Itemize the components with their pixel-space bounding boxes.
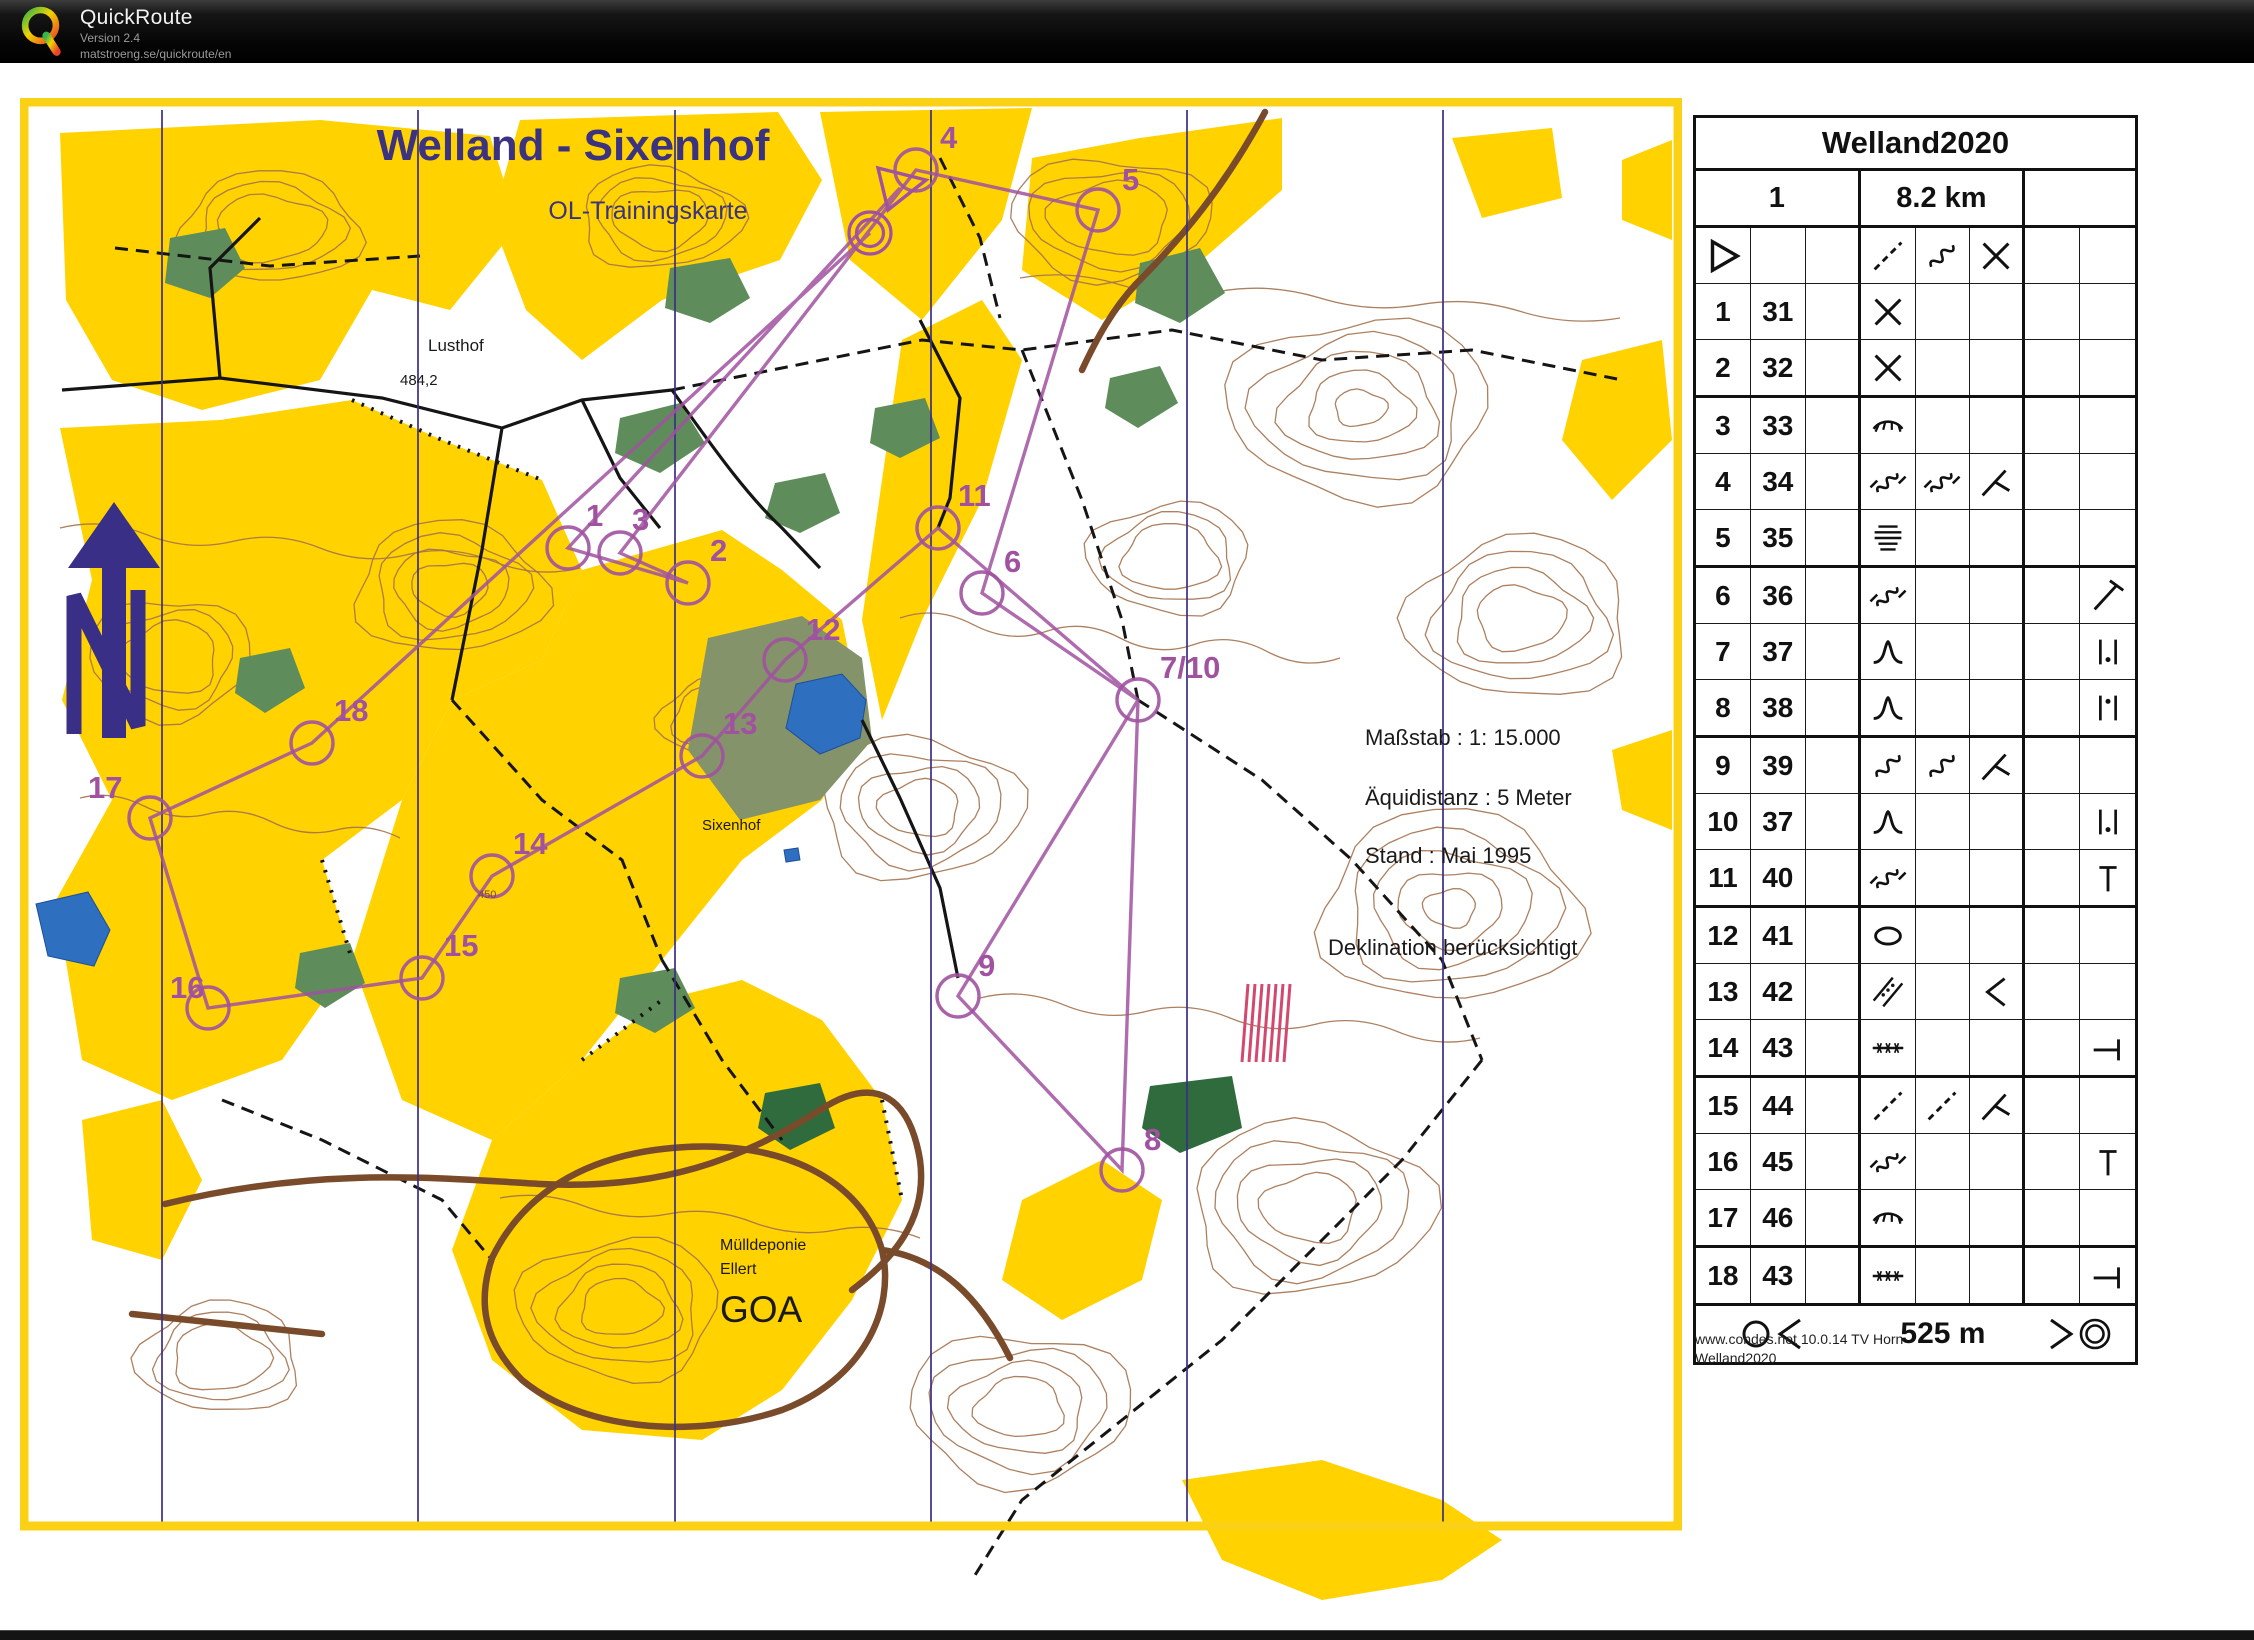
cd-cell-d bbox=[1861, 284, 1916, 339]
cd-cell-b: 36 bbox=[1751, 568, 1806, 623]
cd-cell-g bbox=[2025, 1134, 2080, 1189]
taped-route-finish-symbol bbox=[2025, 1306, 2135, 1362]
control-number-label: 11 bbox=[958, 478, 991, 513]
control-code: 42 bbox=[1762, 976, 1793, 1008]
control-row: 1843 bbox=[1696, 1248, 2135, 1306]
veg-boundary-symbol bbox=[1867, 405, 1909, 447]
cd-cell-c bbox=[1806, 908, 1861, 963]
cd-cell-f bbox=[1970, 680, 2025, 735]
control-code: 39 bbox=[1762, 750, 1793, 782]
cd-cell-d bbox=[1861, 850, 1916, 905]
cd-cell-e bbox=[1916, 1134, 1971, 1189]
cross-symbol bbox=[1975, 235, 2017, 277]
control-code: 37 bbox=[1762, 636, 1793, 668]
cd-cell-f bbox=[1970, 624, 2025, 679]
cd-cell-e bbox=[1916, 908, 1971, 963]
cd-cell-f bbox=[1970, 228, 2025, 283]
cd-cell-b: 44 bbox=[1751, 1078, 1806, 1133]
label-goa: GOA bbox=[720, 1289, 803, 1330]
cd-cell-d bbox=[1861, 1020, 1916, 1075]
cd-cell-a: 11 bbox=[1696, 850, 1751, 905]
control-number: 4 bbox=[1715, 466, 1731, 498]
junction-y-symbol bbox=[1975, 745, 2017, 787]
cd-cell-f bbox=[1970, 454, 2025, 509]
cd-cell-e bbox=[1916, 510, 1971, 565]
app-url: matstroeng.se/quickroute/en bbox=[80, 48, 231, 62]
cd-cell-d bbox=[1861, 228, 1916, 283]
label-lusthof: Lusthof bbox=[428, 336, 484, 355]
cd-cell-e bbox=[1916, 794, 1971, 849]
cd-cell-c bbox=[1806, 1190, 1861, 1245]
control-number: 14 bbox=[1707, 1032, 1738, 1064]
control-number-label: 4 bbox=[940, 120, 958, 155]
control-number: 6 bbox=[1715, 580, 1731, 612]
cd-cell-e bbox=[1916, 228, 1971, 283]
cd-cell-h bbox=[2080, 284, 2135, 339]
cd-cell-b: 42 bbox=[1751, 964, 1806, 1019]
cd-cell-c bbox=[1806, 398, 1861, 453]
junction-y-symbol bbox=[1975, 1085, 2017, 1127]
cd-cell-b: 46 bbox=[1751, 1190, 1806, 1245]
control-number-label: 6 bbox=[1004, 544, 1021, 579]
cross-symbol bbox=[1867, 291, 1909, 333]
cd-cell-c bbox=[1806, 284, 1861, 339]
cd-cell-f bbox=[1970, 340, 2025, 395]
cd-cell-a: 15 bbox=[1696, 1078, 1751, 1133]
cd-cell-d bbox=[1861, 964, 1916, 1019]
cd-cell-f bbox=[1970, 1078, 2025, 1133]
cd-cell-e bbox=[1916, 738, 1971, 793]
control-code: 43 bbox=[1762, 1260, 1793, 1292]
label-contour-value: 450 bbox=[478, 889, 496, 901]
control-code: 46 bbox=[1762, 1202, 1793, 1234]
control-number: 16 bbox=[1707, 1146, 1738, 1178]
cd-cell-g bbox=[2025, 1248, 2080, 1303]
cd-cell-d bbox=[1861, 340, 1916, 395]
cd-cell-a: 7 bbox=[1696, 624, 1751, 679]
course-number: 1 bbox=[1696, 171, 1861, 225]
cd-cell-b: 40 bbox=[1751, 850, 1806, 905]
cd-cell-f bbox=[1970, 284, 2025, 339]
ride-symbol bbox=[1867, 971, 1909, 1013]
cd-cell-f bbox=[1970, 1020, 2025, 1075]
cd-cell-h bbox=[2080, 510, 2135, 565]
cd-cell-e bbox=[1916, 680, 1971, 735]
control-number: 9 bbox=[1715, 750, 1731, 782]
fence-symbol bbox=[1867, 1027, 1909, 1069]
label-sixenhof: Sixenhof bbox=[702, 817, 761, 834]
cd-cell-h bbox=[2080, 1190, 2135, 1245]
cd-cell-g bbox=[2025, 850, 2080, 905]
gully-symbol bbox=[1921, 461, 1963, 503]
credits: www.condes.net 10.0.14 TV Horn Welland20… bbox=[1695, 1330, 1903, 1368]
control-number-label: 13 bbox=[723, 706, 757, 741]
bend-symbol bbox=[1975, 971, 2017, 1013]
cd-cell-a bbox=[1696, 228, 1751, 283]
cd-cell-h bbox=[2080, 454, 2135, 509]
t-top-symbol bbox=[2087, 857, 2129, 899]
info-declination: Deklination berücksichtigt bbox=[1328, 935, 1577, 960]
cd-cell-e bbox=[1916, 568, 1971, 623]
control-number-label: 17 bbox=[88, 770, 122, 805]
cd-cell-a: 1 bbox=[1696, 284, 1751, 339]
app-title: QuickRoute bbox=[80, 6, 231, 30]
info-scale: Maßstab : 1: 15.000 bbox=[1365, 725, 1561, 750]
control-row: 1443 bbox=[1696, 1020, 2135, 1078]
cd-cell-b: 32 bbox=[1751, 340, 1806, 395]
cd-cell-h bbox=[2080, 624, 2135, 679]
cd-cell-c bbox=[1806, 1020, 1861, 1075]
cd-cell-f bbox=[1970, 850, 2025, 905]
cd-cell-c bbox=[1806, 624, 1861, 679]
chevron-double-circle-symbol bbox=[2043, 1312, 2117, 1356]
cd-cell-g bbox=[2025, 284, 2080, 339]
control-row: 333 bbox=[1696, 398, 2135, 454]
cd-cell-g bbox=[2025, 964, 2080, 1019]
cd-cell-c bbox=[1806, 454, 1861, 509]
control-number-label: 8 bbox=[1144, 1122, 1161, 1157]
knoll-symbol bbox=[1867, 801, 1909, 843]
control-row: 737 bbox=[1696, 624, 2135, 680]
cd-cell-d bbox=[1861, 908, 1916, 963]
cd-cell-a: 8 bbox=[1696, 680, 1751, 735]
control-number-label: 5 bbox=[1122, 162, 1139, 197]
cd-cell-d bbox=[1861, 454, 1916, 509]
end-bar-symbol bbox=[2087, 1027, 2129, 1069]
control-number-label: 18 bbox=[334, 693, 368, 728]
cd-cell-a: 4 bbox=[1696, 454, 1751, 509]
control-number: 18 bbox=[1707, 1260, 1738, 1292]
fence-symbol bbox=[1867, 1255, 1909, 1297]
cd-cell-b: 38 bbox=[1751, 680, 1806, 735]
gully-symbol bbox=[1867, 575, 1909, 617]
squiggle-symbol bbox=[1867, 745, 1909, 787]
control-code: 43 bbox=[1762, 1032, 1793, 1064]
cd-cell-h bbox=[2080, 1134, 2135, 1189]
cd-cell-a: 3 bbox=[1696, 398, 1751, 453]
control-row: 535 bbox=[1696, 510, 2135, 568]
cd-cell-b: 37 bbox=[1751, 794, 1806, 849]
control-row: 434 bbox=[1696, 454, 2135, 510]
cd-cell-c bbox=[1806, 1134, 1861, 1189]
cd-cell-a: 5 bbox=[1696, 510, 1751, 565]
control-number-label: 12 bbox=[806, 612, 840, 647]
control-number-label: 7/10 bbox=[1160, 650, 1220, 685]
cd-cell-b: 39 bbox=[1751, 738, 1806, 793]
junction-y-symbol bbox=[1975, 461, 2017, 503]
cd-cell-g bbox=[2025, 454, 2080, 509]
cd-cell-e bbox=[1916, 284, 1971, 339]
cd-cell-f bbox=[1970, 510, 2025, 565]
cd-cell-a: 17 bbox=[1696, 1190, 1751, 1245]
cd-cell-d bbox=[1861, 738, 1916, 793]
label-spot-height: 484,2 bbox=[400, 372, 438, 389]
end-bar-symbol bbox=[2087, 1255, 2129, 1297]
control-rows: 1312323334345356367378389391037114012411… bbox=[1696, 228, 2135, 1306]
cd-cell-e bbox=[1916, 850, 1971, 905]
gully-symbol bbox=[1867, 857, 1909, 899]
cd-cell-e bbox=[1916, 398, 1971, 453]
cd-cell-f bbox=[1970, 908, 2025, 963]
control-number: 8 bbox=[1715, 692, 1731, 724]
cd-cell-b: 34 bbox=[1751, 454, 1806, 509]
hatched-area bbox=[1242, 984, 1290, 1062]
cd-cell-c bbox=[1806, 794, 1861, 849]
cd-cell-d bbox=[1861, 1190, 1916, 1245]
label-muelldeponie: Mülldeponie bbox=[720, 1237, 806, 1254]
cd-cell-g bbox=[2025, 794, 2080, 849]
cd-cell-e bbox=[1916, 1078, 1971, 1133]
cd-cell-f bbox=[1970, 1248, 2025, 1303]
control-code: 36 bbox=[1762, 580, 1793, 612]
control-row: 232 bbox=[1696, 340, 2135, 398]
cd-cell-c bbox=[1806, 568, 1861, 623]
control-number: 12 bbox=[1707, 920, 1738, 952]
gully-symbol bbox=[1867, 461, 1909, 503]
between-dot-low-symbol bbox=[2087, 631, 2129, 673]
cd-cell-e bbox=[1916, 1248, 1971, 1303]
cd-cell-g bbox=[2025, 1078, 2080, 1133]
cd-cell-f bbox=[1970, 794, 2025, 849]
cd-cell-c bbox=[1806, 964, 1861, 1019]
control-description-sheet: Welland2020 1 8.2 km 1312323334345356367… bbox=[1693, 115, 2138, 1365]
dashed-line-symbol bbox=[1921, 1085, 1963, 1127]
cd-cell-g bbox=[2025, 908, 2080, 963]
info-state: Stand : Mai 1995 bbox=[1365, 843, 1531, 868]
control-row: 636 bbox=[1696, 568, 2135, 624]
control-number-label: 16 bbox=[170, 970, 204, 1005]
control-code: 35 bbox=[1762, 522, 1793, 554]
gully-symbol bbox=[1867, 1141, 1909, 1183]
cd-cell-c bbox=[1806, 850, 1861, 905]
cd-cell-b: 33 bbox=[1751, 398, 1806, 453]
control-row: 939 bbox=[1696, 738, 2135, 794]
cd-cell-h bbox=[2080, 964, 2135, 1019]
orienteering-map[interactable]: 1234567/10891112131415161718 Welland - S… bbox=[20, 98, 1682, 1638]
control-number: 17 bbox=[1707, 1202, 1738, 1234]
cd-cell-d bbox=[1861, 510, 1916, 565]
cd-cell-d bbox=[1861, 398, 1916, 453]
control-number-label: 14 bbox=[513, 826, 548, 861]
cd-cell-b: 43 bbox=[1751, 1248, 1806, 1303]
control-code: 32 bbox=[1762, 352, 1793, 384]
credits-line2: Welland2020 bbox=[1695, 1349, 1903, 1368]
control-row: 1746 bbox=[1696, 1190, 2135, 1248]
cd-cell-g bbox=[2025, 738, 2080, 793]
cd-cell-b: 37 bbox=[1751, 624, 1806, 679]
cd-cell-e bbox=[1916, 624, 1971, 679]
veg-boundary-symbol bbox=[1867, 1197, 1909, 1239]
control-number-label: 3 bbox=[632, 502, 649, 537]
cd-cell-e bbox=[1916, 1020, 1971, 1075]
cd-cell-h bbox=[2080, 568, 2135, 623]
cd-cell-f bbox=[1970, 964, 2025, 1019]
control-number-label: 9 bbox=[978, 948, 995, 983]
cd-cell-a: 13 bbox=[1696, 964, 1751, 1019]
cd-cell-d bbox=[1861, 1248, 1916, 1303]
control-code: 34 bbox=[1762, 466, 1793, 498]
cd-cell-g bbox=[2025, 340, 2080, 395]
cd-cell-h bbox=[2080, 850, 2135, 905]
control-row: 1241 bbox=[1696, 908, 2135, 964]
cd-cell-g bbox=[2025, 1190, 2080, 1245]
cd-cell-g bbox=[2025, 228, 2080, 283]
cd-cell-e bbox=[1916, 340, 1971, 395]
start-triangle-symbol bbox=[1702, 235, 1744, 277]
control-number: 10 bbox=[1707, 806, 1738, 838]
control-number: 1 bbox=[1715, 296, 1731, 328]
cd-cell-g bbox=[2025, 568, 2080, 623]
cd-cell-c bbox=[1806, 228, 1861, 283]
cd-cell-d bbox=[1861, 624, 1916, 679]
t-top-symbol bbox=[2087, 1141, 2129, 1183]
cd-cell-a: 12 bbox=[1696, 908, 1751, 963]
dashed-line-symbol bbox=[1867, 235, 1909, 277]
cd-cell-h bbox=[2080, 1020, 2135, 1075]
map-subtitle: OL-Trainingskarte bbox=[548, 197, 747, 225]
cd-cell-h bbox=[2080, 1078, 2135, 1133]
cd-cell-d bbox=[1861, 1078, 1916, 1133]
course-climb bbox=[2025, 171, 2135, 225]
course-name: Welland2020 bbox=[1696, 118, 2135, 171]
cd-cell-a: 18 bbox=[1696, 1248, 1751, 1303]
cd-cell-g bbox=[2025, 398, 2080, 453]
control-code: 31 bbox=[1762, 296, 1793, 328]
control-row bbox=[1696, 228, 2135, 284]
control-code: 33 bbox=[1762, 410, 1793, 442]
cd-cell-b: 43 bbox=[1751, 1020, 1806, 1075]
control-number: 5 bbox=[1715, 522, 1731, 554]
oval-symbol bbox=[1867, 915, 1909, 957]
cd-cell-g bbox=[2025, 1020, 2080, 1075]
cd-cell-g bbox=[2025, 624, 2080, 679]
dashed-line-symbol bbox=[1867, 1085, 1909, 1127]
cd-cell-h bbox=[2080, 398, 2135, 453]
cd-cell-a: 16 bbox=[1696, 1134, 1751, 1189]
cd-cell-h bbox=[2080, 908, 2135, 963]
cd-cell-c bbox=[1806, 738, 1861, 793]
cd-cell-h bbox=[2080, 680, 2135, 735]
cd-cell-c bbox=[1806, 680, 1861, 735]
cd-cell-g bbox=[2025, 680, 2080, 735]
cd-cell-e bbox=[1916, 1190, 1971, 1245]
cd-cell-e bbox=[1916, 964, 1971, 1019]
cross-symbol bbox=[1867, 347, 1909, 389]
cd-cell-h bbox=[2080, 1248, 2135, 1303]
control-row: 1037 bbox=[1696, 794, 2135, 850]
control-number-label: 2 bbox=[710, 533, 727, 568]
control-code: 38 bbox=[1762, 692, 1793, 724]
control-row: 1342 bbox=[1696, 964, 2135, 1020]
control-code: 45 bbox=[1762, 1146, 1793, 1178]
cd-cell-f bbox=[1970, 738, 2025, 793]
knoll-symbol bbox=[1867, 631, 1909, 673]
cd-cell-e bbox=[1916, 454, 1971, 509]
diag-t-symbol bbox=[2087, 575, 2129, 617]
control-row: 838 bbox=[1696, 680, 2135, 738]
control-code: 40 bbox=[1762, 862, 1793, 894]
cd-cell-b: 31 bbox=[1751, 284, 1806, 339]
cd-cell-d bbox=[1861, 680, 1916, 735]
knoll-symbol bbox=[1867, 687, 1909, 729]
cd-cell-f bbox=[1970, 398, 2025, 453]
squiggle-symbol bbox=[1921, 235, 1963, 277]
between-dot-high-symbol bbox=[2087, 687, 2129, 729]
quickroute-window: QuickRoute Version 2.4 matstroeng.se/qui… bbox=[0, 0, 2254, 1640]
control-number: 15 bbox=[1707, 1090, 1738, 1122]
control-code: 44 bbox=[1762, 1090, 1793, 1122]
cd-cell-h bbox=[2080, 794, 2135, 849]
cd-cell-b: 41 bbox=[1751, 908, 1806, 963]
control-number: 11 bbox=[1708, 862, 1738, 894]
cd-cell-d bbox=[1861, 1134, 1916, 1189]
course-info-row: 1 8.2 km bbox=[1696, 171, 2135, 228]
control-number-label: 15 bbox=[444, 928, 478, 963]
control-number: 3 bbox=[1715, 410, 1731, 442]
control-number: 13 bbox=[1707, 976, 1738, 1008]
control-row: 1645 bbox=[1696, 1134, 2135, 1190]
bottom-strip bbox=[0, 1630, 2254, 1640]
cd-cell-c bbox=[1806, 340, 1861, 395]
map-title: Welland - Sixenhof bbox=[377, 121, 770, 170]
cd-cell-a: 6 bbox=[1696, 568, 1751, 623]
control-number: 7 bbox=[1715, 636, 1731, 668]
cd-cell-a: 14 bbox=[1696, 1020, 1751, 1075]
app-header: QuickRoute Version 2.4 matstroeng.se/qui… bbox=[0, 0, 2254, 63]
credits-line1: www.condes.net 10.0.14 TV Horn bbox=[1695, 1330, 1903, 1349]
cd-cell-b: 35 bbox=[1751, 510, 1806, 565]
cd-cell-f bbox=[1970, 1190, 2025, 1245]
control-code: 41 bbox=[1762, 920, 1793, 952]
cd-cell-b bbox=[1751, 228, 1806, 283]
cd-cell-c bbox=[1806, 1248, 1861, 1303]
cd-cell-a: 2 bbox=[1696, 340, 1751, 395]
course-length: 8.2 km bbox=[1861, 171, 2026, 225]
control-number-label: 1 bbox=[586, 498, 603, 533]
control-number: 2 bbox=[1715, 352, 1731, 384]
map-canvas[interactable]: 1234567/10891112131415161718 Welland - S… bbox=[20, 98, 1682, 1638]
terrace-symbol bbox=[1867, 517, 1909, 559]
cd-cell-g bbox=[2025, 510, 2080, 565]
cd-cell-h bbox=[2080, 738, 2135, 793]
cd-cell-h bbox=[2080, 340, 2135, 395]
info-equidistance: Äquidistanz : 5 Meter bbox=[1365, 785, 1572, 810]
between-dot-low-symbol bbox=[2087, 801, 2129, 843]
label-ellert: Ellert bbox=[720, 1261, 757, 1278]
control-row: 1140 bbox=[1696, 850, 2135, 908]
cd-cell-a: 9 bbox=[1696, 738, 1751, 793]
cd-cell-d bbox=[1861, 568, 1916, 623]
control-row: 1544 bbox=[1696, 1078, 2135, 1134]
app-version: Version 2.4 bbox=[80, 32, 231, 46]
squiggle-symbol bbox=[1921, 745, 1963, 787]
cd-cell-d bbox=[1861, 794, 1916, 849]
control-row: 131 bbox=[1696, 284, 2135, 340]
cd-cell-h bbox=[2080, 228, 2135, 283]
control-code: 37 bbox=[1762, 806, 1793, 838]
quickroute-logo-icon bbox=[20, 4, 64, 60]
cd-cell-c bbox=[1806, 510, 1861, 565]
cd-cell-f bbox=[1970, 1134, 2025, 1189]
cd-cell-a: 10 bbox=[1696, 794, 1751, 849]
cd-cell-f bbox=[1970, 568, 2025, 623]
cd-cell-c bbox=[1806, 1078, 1861, 1133]
cd-cell-b: 45 bbox=[1751, 1134, 1806, 1189]
